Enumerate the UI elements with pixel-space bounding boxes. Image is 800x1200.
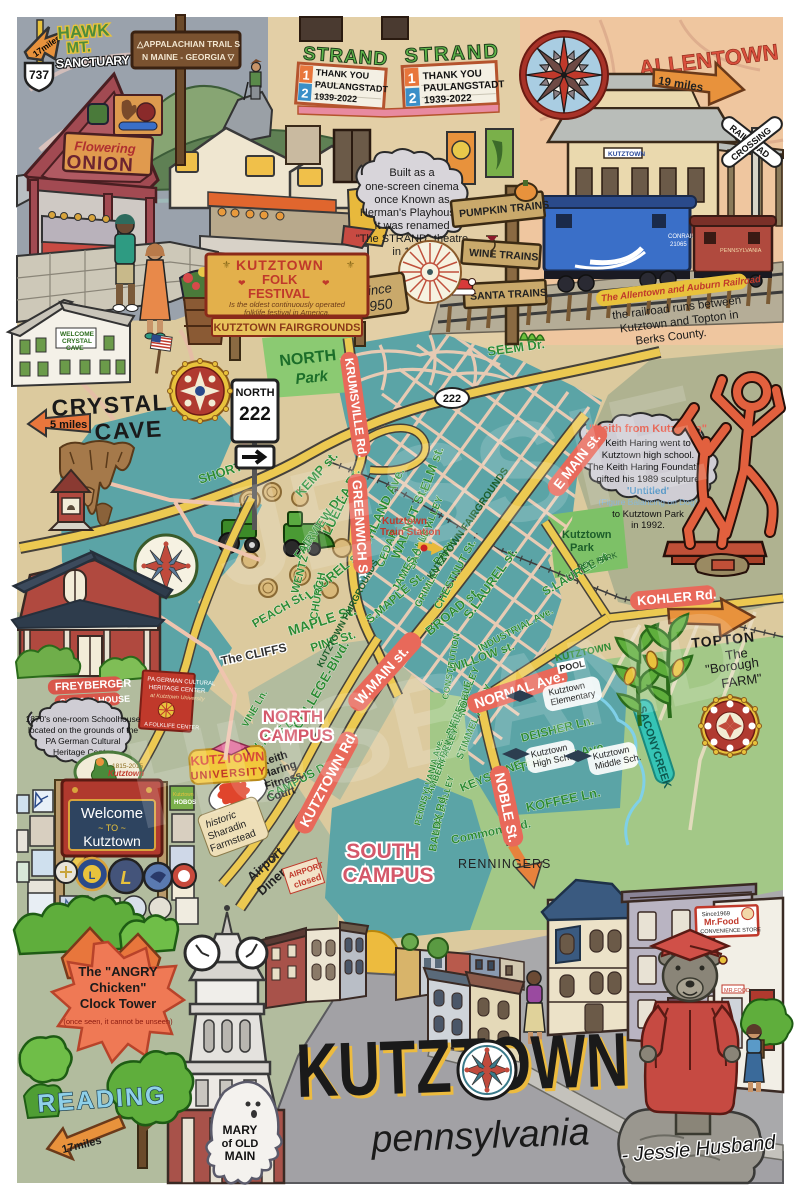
svg-text:CONRAIL: CONRAIL — [668, 234, 695, 240]
svg-text:KUTZTOWN FAIRGROUNDS: KUTZTOWN FAIRGROUNDS — [213, 322, 360, 334]
svg-text:Park: Park — [295, 368, 330, 388]
svg-text:Mr.Food: Mr.Food — [704, 916, 739, 927]
svg-text:KUTZTOWN: KUTZTOWN — [236, 257, 324, 273]
svg-text:Built as a: Built as a — [389, 167, 435, 179]
svg-text:SOUTH: SOUTH — [346, 840, 420, 863]
svg-text:NORTH: NORTH — [235, 387, 274, 399]
svg-text:Chicken": Chicken" — [90, 980, 147, 995]
svg-text:✈: ✈ — [268, 850, 279, 865]
svg-text:MR.FOOD: MR.FOOD — [724, 988, 750, 994]
svg-text:KUTZTOWN: KUTZTOWN — [608, 151, 645, 158]
svg-text:5 miles: 5 miles — [50, 419, 87, 431]
svg-text:It was renamed: It was renamed — [374, 220, 449, 232]
svg-text:FOLK: FOLK — [262, 272, 298, 287]
svg-text:PA German Cultural: PA German Cultural — [46, 736, 121, 746]
svg-text:222: 222 — [239, 404, 271, 425]
svg-text:❤: ❤ — [322, 278, 330, 288]
svg-text:222: 222 — [443, 393, 461, 405]
svg-text:Herman's Playhouse.: Herman's Playhouse. — [360, 207, 464, 219]
svg-text:Park: Park — [570, 542, 595, 554]
svg-text:MARY: MARY — [223, 1123, 258, 1137]
svg-text:❤: ❤ — [238, 278, 246, 288]
svg-text:folklife festival in America.: folklife festival in America. — [244, 308, 330, 317]
svg-text:MT.: MT. — [66, 38, 91, 57]
svg-text:MAIN: MAIN — [225, 1149, 256, 1163]
svg-text:Clock Tower: Clock Tower — [80, 996, 156, 1011]
svg-text:L: L — [121, 868, 132, 888]
svg-text:737: 737 — [29, 68, 49, 82]
svg-text:CAVE: CAVE — [66, 345, 84, 352]
svg-text:1: 1 — [302, 67, 310, 82]
svg-text:CAMPUS: CAMPUS — [342, 864, 433, 887]
svg-text:one-screen cinema: one-screen cinema — [365, 181, 459, 193]
svg-text:~ TO ~: ~ TO ~ — [98, 823, 126, 833]
svg-text:ONION: ONION — [66, 152, 134, 176]
svg-text:CRYSTAL: CRYSTAL — [62, 338, 92, 345]
svg-text:pennsylvania: pennsylvania — [370, 1111, 590, 1161]
svg-text:⚜: ⚜ — [346, 260, 355, 271]
svg-text:PENNSYLVANIA: PENNSYLVANIA — [720, 248, 762, 254]
svg-text:RENNINGERS: RENNINGERS — [458, 857, 551, 871]
svg-text:2: 2 — [301, 85, 309, 100]
svg-text:WELCOME: WELCOME — [60, 331, 95, 338]
svg-text:△APPALACHIAN TRAIL S: △APPALACHIAN TRAIL S — [136, 39, 240, 49]
svg-text:L: L — [89, 870, 96, 882]
svg-text:Kutztown: Kutztown — [83, 833, 141, 849]
svg-text:⚜: ⚜ — [222, 260, 231, 271]
svg-text:The "ANGRY: The "ANGRY — [78, 964, 158, 979]
svg-text:N MAINE - GEORGIA ▽: N MAINE - GEORGIA ▽ — [142, 52, 236, 62]
svg-text:2: 2 — [408, 90, 417, 106]
svg-text:21065: 21065 — [670, 242, 687, 248]
svg-text:FESTIVAL: FESTIVAL — [248, 286, 310, 301]
svg-text:(once seen, it cannot be unsee: (once seen, it cannot be unseen) — [63, 1017, 173, 1026]
svg-text:1: 1 — [407, 70, 416, 86]
svg-text:once Known as: once Known as — [374, 194, 450, 206]
svg-text:"The STRAND" theatre: "The STRAND" theatre — [356, 233, 468, 245]
svg-text:Welcome: Welcome — [81, 805, 143, 822]
